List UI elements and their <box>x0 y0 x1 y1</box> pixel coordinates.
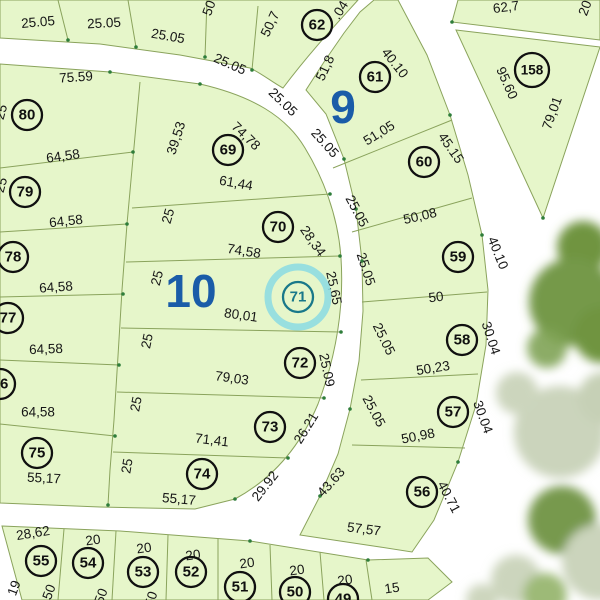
lot-number-label: 79 <box>17 184 34 201</box>
dimension-label: 20 <box>85 532 102 549</box>
dimension-label: 25 <box>138 332 156 350</box>
lot-number-label: 80 <box>19 107 36 124</box>
plat-map: 25.0525.0525.0525.0525.055050,7.0451,840… <box>0 0 600 600</box>
lot-number-label: 51 <box>232 579 249 596</box>
dimension-label: 20 <box>239 555 256 572</box>
lot-number-label: 57 <box>445 404 462 421</box>
lot-number-label: 71 <box>290 289 307 306</box>
lot-number-label: 61 <box>367 69 384 86</box>
tree-icon <box>527 328 567 368</box>
dimension-label: 55,17 <box>27 470 62 487</box>
lot-number-label: 50 <box>287 584 304 600</box>
lot-number-label: 52 <box>183 564 200 581</box>
dimension-label: 55,17 <box>162 490 197 508</box>
lot-number-label: 76 <box>0 376 8 393</box>
lot-number-label: 62 <box>309 17 326 34</box>
lot-number-label: 56 <box>414 484 431 501</box>
lot-number-label: 70 <box>270 219 287 236</box>
dimension-label: 64,58 <box>29 341 63 357</box>
dimension-label: 64,58 <box>39 278 74 295</box>
lot-number-label: 49 <box>335 591 352 600</box>
dimension-label: 50 <box>428 289 445 306</box>
lot-number-label: 73 <box>262 419 279 436</box>
lot-number-label: 60 <box>416 154 433 171</box>
dimension-label: 40.10 <box>485 235 512 272</box>
dimension-label: 20 <box>185 547 202 564</box>
lot-number-label: 77 <box>0 310 16 327</box>
dimension-label: 20 <box>289 562 306 579</box>
lot-number-label: 69 <box>220 142 237 159</box>
block-label-9: 9 <box>330 81 356 133</box>
lot-number-label: 75 <box>29 445 46 462</box>
dimension-label: 25.05 <box>87 15 122 32</box>
lot-number-label: 72 <box>292 355 309 372</box>
dimension-label: 64,58 <box>21 405 55 420</box>
lot-number-label: 55 <box>33 553 50 570</box>
lot-number-label: 59 <box>450 249 467 266</box>
parcel-lot-158-triangle[interactable] <box>456 30 600 218</box>
lot-number-label: 74 <box>194 466 211 483</box>
dimension-label: 25.05 <box>21 13 56 31</box>
dimension-label: 20 <box>136 540 153 557</box>
dimension-label: 30.04 <box>470 399 496 436</box>
dimension-label: 25 <box>127 395 145 413</box>
dimension-label: 25 <box>118 457 135 474</box>
plat-map-stage: 25.0525.0525.0525.0525.055050,7.0451,840… <box>0 0 600 600</box>
lot-number-label: 53 <box>135 564 152 581</box>
lot-number-label: 54 <box>80 555 97 572</box>
tree-icon <box>496 372 538 414</box>
block-label-10: 10 <box>165 265 216 317</box>
dimension-label: 75.59 <box>59 68 94 85</box>
lot-number-label: 58 <box>454 332 471 349</box>
dimension-label: 15 <box>384 580 401 597</box>
lot-number-label: 158 <box>521 63 544 78</box>
lot-number-label: 78 <box>5 249 22 266</box>
